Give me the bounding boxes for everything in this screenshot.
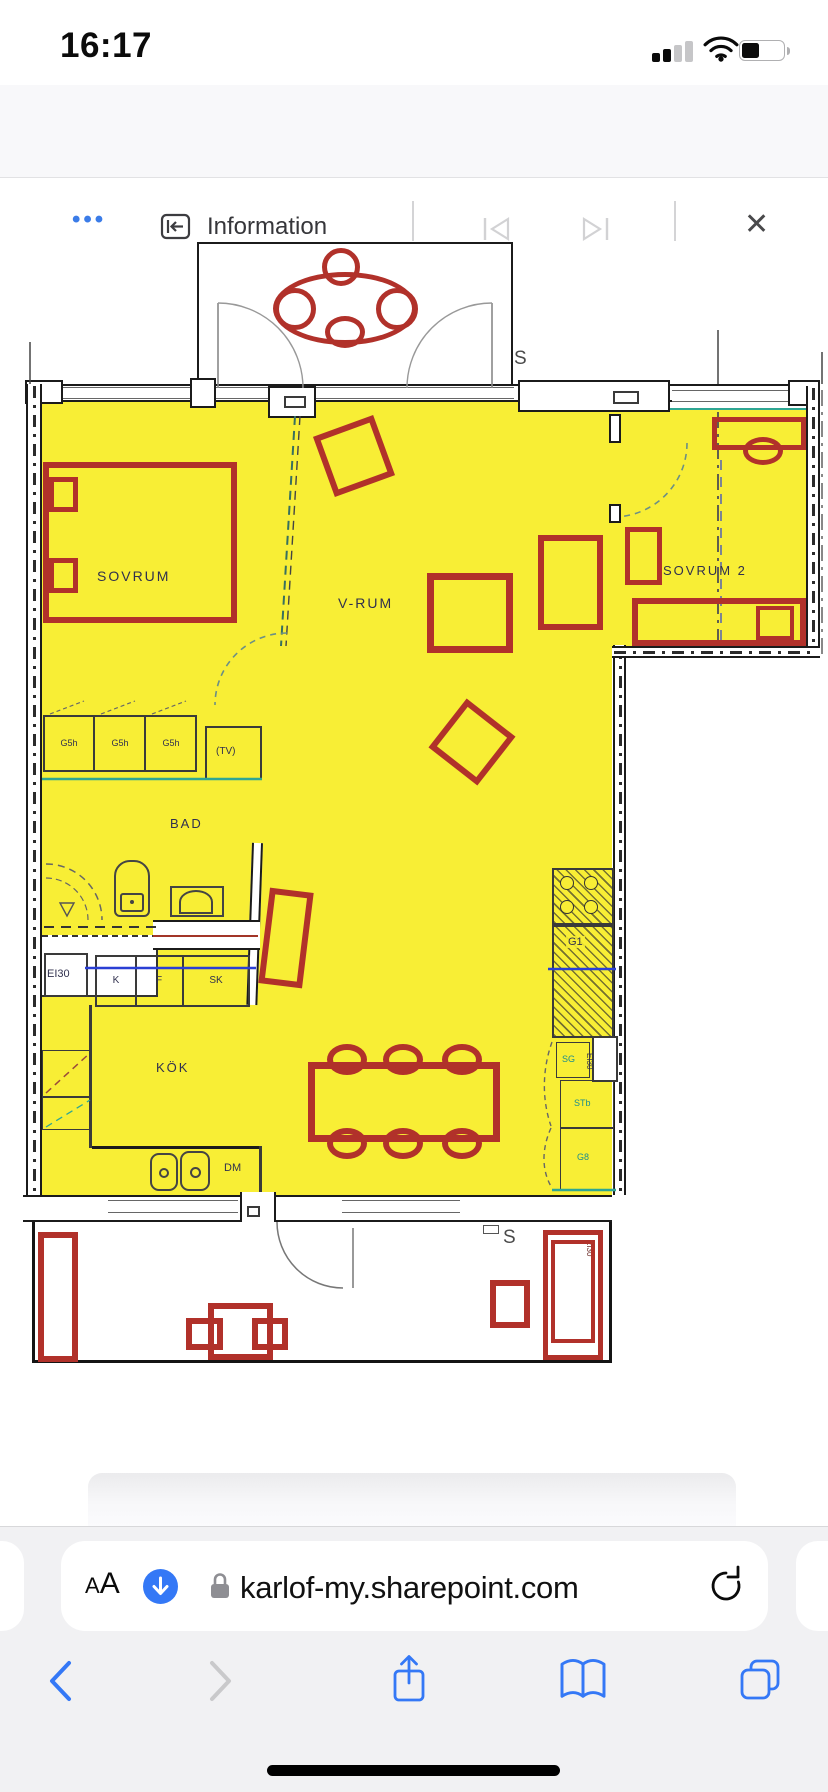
dining-chair: [442, 1128, 482, 1159]
safari-chrome: AA karlof-my.sharepoint.com: [0, 1526, 828, 1792]
url-bar[interactable]: AA karlof-my.sharepoint.com: [61, 1541, 768, 1631]
room-label-sovrum2: SOVRUM 2: [663, 563, 747, 578]
room-label-vrum: V-RUM: [338, 595, 393, 611]
wall-right: [613, 645, 626, 1195]
coffee-table: [427, 573, 513, 653]
dining-chair: [327, 1128, 367, 1159]
tabs-icon[interactable]: [737, 1657, 783, 1706]
wall-wing-bottom: [612, 646, 820, 658]
lock-icon: [208, 1571, 232, 1606]
terrace-s-label: S: [503, 1227, 516, 1249]
stove: [552, 868, 614, 925]
balcony-chair: [325, 316, 365, 348]
wall-pier: [518, 380, 670, 412]
sink: [170, 886, 224, 917]
window: [342, 1200, 460, 1213]
reader-a-large: A: [100, 1567, 120, 1600]
desk-chair: [743, 437, 783, 465]
cabinet-label: SG: [562, 1054, 575, 1064]
viewer-toolbar: ••• Information ✕: [0, 85, 828, 178]
sink-basin: [150, 1153, 178, 1191]
back-icon[interactable]: [46, 1659, 74, 1708]
wall-wing-right: [806, 386, 820, 648]
tv-label: (TV): [216, 746, 235, 757]
fire-door-box: [592, 1036, 618, 1082]
share-icon[interactable]: [389, 1653, 429, 1710]
reader-a-small: A: [85, 1573, 100, 1598]
fire-rating-label: EI30: [585, 1053, 594, 1069]
reader-button[interactable]: AA: [85, 1567, 120, 1601]
bed2-pillow: [756, 606, 794, 640]
window: [108, 1200, 238, 1213]
room-label-bad: BAD: [170, 816, 203, 831]
sofa: [538, 535, 603, 630]
room-label-sovrum: SOVRUM: [97, 568, 170, 584]
terrace-marker: [483, 1225, 499, 1234]
terrace-chair: [490, 1280, 530, 1328]
terrace-sunbed: [38, 1232, 78, 1362]
closet-label: G5h: [147, 738, 195, 748]
appliance-label: K: [97, 975, 135, 986]
counter-edge: [259, 1146, 262, 1197]
dresser: [625, 527, 662, 585]
window-marker: [284, 396, 306, 408]
home-indicator[interactable]: [267, 1765, 560, 1776]
wifi-icon: [703, 36, 739, 67]
window: [62, 387, 192, 399]
nightstand: [49, 477, 78, 512]
counter-edge: [92, 1146, 262, 1149]
terrace-sofa-inner: [551, 1240, 595, 1343]
download-badge[interactable]: [143, 1569, 178, 1604]
entry-cabinet: [42, 1050, 92, 1097]
closet-divider: [144, 716, 146, 771]
wall-pier: [190, 378, 216, 408]
dining-chair: [442, 1044, 482, 1075]
balcony-chair: [322, 248, 360, 286]
closet-divider: [93, 716, 95, 771]
bottom-sheet-edge: [88, 1473, 736, 1526]
closet-label: G5h: [45, 738, 93, 748]
wall-left: [26, 384, 42, 1222]
refresh-icon[interactable]: [706, 1565, 746, 1612]
appliance-label: F: [137, 975, 181, 986]
signal-icon: [652, 38, 698, 62]
dining-chair: [383, 1044, 423, 1075]
prev-tab-stub[interactable]: [0, 1541, 24, 1631]
cabinet-label: STb: [574, 1098, 591, 1108]
wall-bath-south: [153, 920, 260, 950]
battery-icon: [739, 40, 791, 62]
dining-chair: [383, 1128, 423, 1159]
toilet: [114, 860, 150, 917]
balcony-chair: [274, 288, 316, 330]
status-time: 16:17: [60, 26, 152, 66]
counter-wall: [89, 1005, 92, 1148]
door-marker: [247, 1206, 260, 1217]
fire-rating-label: EI30: [47, 968, 70, 980]
dining-chair: [327, 1044, 367, 1075]
dishwasher-label: DM: [224, 1162, 241, 1174]
cabinet-label: G8: [577, 1152, 589, 1162]
terrace-chair: [252, 1318, 288, 1350]
url-text: karlof-my.sharepoint.com: [240, 1570, 579, 1606]
iphone-screen: 16:17 ••• Information: [0, 0, 828, 1792]
next-tab-stub[interactable]: [796, 1541, 828, 1631]
balcony-chair: [376, 288, 418, 330]
room-label-kok: KÖK: [156, 1060, 189, 1075]
nightstand: [49, 558, 78, 593]
entry-cabinet: [42, 1097, 92, 1130]
window: [214, 387, 514, 399]
window: [672, 390, 788, 402]
bookmarks-icon[interactable]: [558, 1658, 608, 1705]
forward-icon[interactable]: [207, 1659, 235, 1708]
sink-basin: [180, 1151, 210, 1191]
counter-label: G1: [566, 936, 585, 948]
closet-label: G5h: [96, 738, 144, 748]
balcony-s-label: S: [514, 348, 527, 370]
window-marker: [613, 391, 639, 404]
appliance-label: SK: [184, 975, 248, 986]
